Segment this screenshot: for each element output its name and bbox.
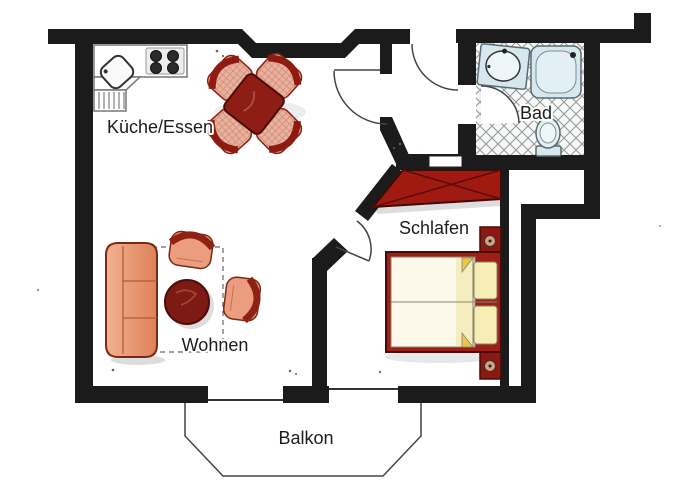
sofa	[106, 243, 157, 357]
wall-bottom-pier	[283, 386, 329, 403]
room-label-bedroom: Schlafen	[399, 218, 469, 238]
hall-door-arc	[334, 71, 387, 124]
bedroom-door-arc	[357, 221, 371, 261]
bathroom	[476, 43, 584, 156]
bath-sink	[477, 44, 530, 90]
wall-living-bedroom	[312, 258, 327, 388]
dishwasher-hatch	[94, 90, 126, 111]
floor-plan: Küche/Essen Bad Schlafen Wohnen Balkon	[0, 0, 700, 486]
wall-left	[75, 44, 93, 390]
wall-outer-right	[521, 204, 536, 403]
kitchen	[94, 45, 187, 111]
wall-bath-left-lower	[458, 124, 476, 155]
window-inset	[429, 156, 462, 167]
toilet	[536, 118, 561, 156]
drain-icon	[570, 52, 576, 58]
wall-hall-upper	[380, 43, 392, 74]
wall-bath-left-upper	[458, 43, 476, 85]
room-label-kitchen: Küche/Essen	[107, 117, 213, 137]
armchair	[223, 276, 262, 322]
floor-plan-svg: Küche/Essen Bad Schlafen Wohnen Balkon	[0, 0, 700, 486]
coffee-table	[165, 280, 209, 324]
bedroom	[373, 170, 501, 379]
pillow	[474, 306, 497, 344]
stove-burners	[146, 48, 184, 74]
room-label-balcony: Balkon	[278, 428, 333, 448]
double-bed	[386, 252, 501, 352]
dining-set	[203, 50, 306, 157]
wall-bottom-b	[398, 386, 536, 403]
room-label-living: Wohnen	[182, 335, 249, 355]
pillow	[474, 262, 497, 299]
wall-jog-right	[536, 204, 600, 219]
wall-hall-bath-bottom	[396, 154, 600, 170]
wall-top-right	[456, 13, 651, 43]
room-label-bath: Bad	[520, 103, 552, 123]
shower	[531, 46, 581, 98]
entry-door-arc	[412, 44, 458, 90]
armchair	[168, 230, 214, 270]
wall-bottom-a	[75, 386, 208, 403]
wall-bath-right	[584, 43, 600, 219]
